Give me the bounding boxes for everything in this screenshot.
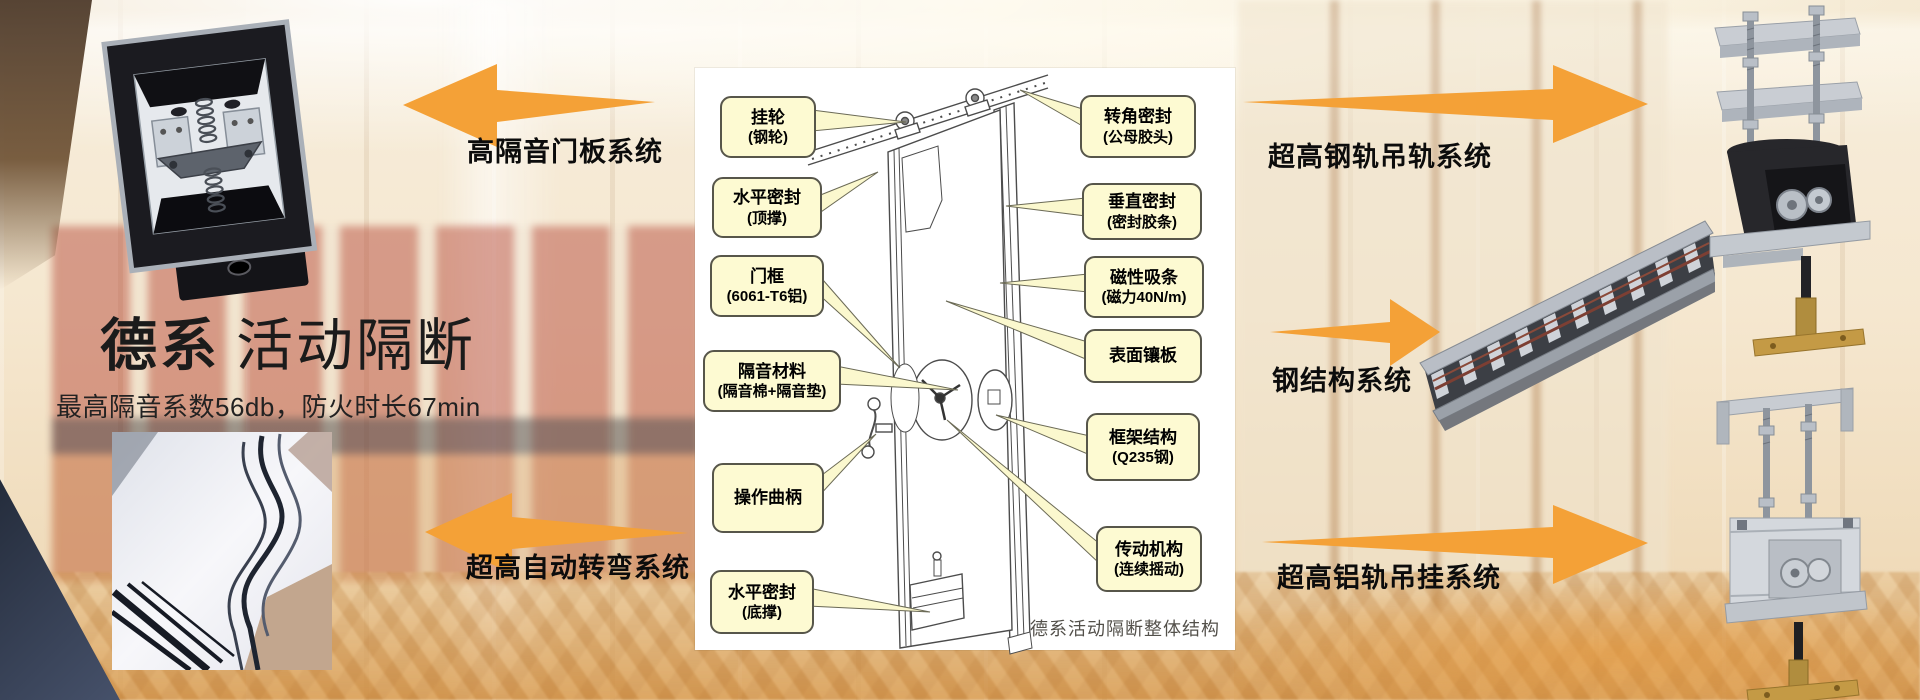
callout-title: 水平密封 <box>733 187 801 209</box>
label-aluminum-rail-system: 超高铝轨吊挂系统 <box>1277 556 1501 595</box>
partition-system-infographic: 挂轮 (钢轮) 水平密封 (顶撑) 门框 (6061-T6铝) 隔音材料 (隔音… <box>0 0 1920 700</box>
callout-title: 垂直密封 <box>1108 191 1176 213</box>
callout-hanging-wheel: 挂轮 (钢轮) <box>720 96 816 158</box>
callout-title: 隔音材料 <box>738 361 806 383</box>
callout-detail: (磁力40N/m) <box>1101 288 1186 307</box>
callout-detail: (Q235钢) <box>1112 448 1174 467</box>
callout-title: 表面镶板 <box>1109 345 1177 367</box>
label-steel-structure-system: 钢结构系统 <box>1272 359 1412 398</box>
callout-sound-insulation: 隔音材料 (隔音棉+隔音垫) <box>703 350 841 412</box>
label-auto-turning-system: 超高自动转弯系统 <box>466 546 690 585</box>
callout-detail: (密封胶条) <box>1107 213 1177 232</box>
callout-door-frame: 门框 (6061-T6铝) <box>710 255 824 317</box>
arrow-top-right <box>1243 65 1648 143</box>
callout-surface-panel: 表面镶板 <box>1084 329 1202 383</box>
brand-name: 德系 <box>100 314 220 378</box>
product-name: 活动隔断 <box>236 314 476 378</box>
callout-title: 挂轮 <box>751 107 785 129</box>
callout-title: 水平密封 <box>728 582 796 604</box>
callout-horizontal-seal-bottom: 水平密封 (底撑) <box>710 570 814 634</box>
callout-detail: (顶撑) <box>747 209 787 228</box>
callout-operating-crank: 操作曲柄 <box>712 463 824 533</box>
label-steel-rail-system: 超高钢轨吊轨系统 <box>1268 135 1492 174</box>
callout-horizontal-seal-top: 水平密封 (顶撑) <box>712 177 822 238</box>
callout-frame-structure: 框架结构 (Q235钢) <box>1086 413 1200 481</box>
operating-crank <box>862 398 892 458</box>
callout-drive-mechanism: 传动机构 (连续摇动) <box>1096 526 1202 592</box>
callout-title: 操作曲柄 <box>734 487 802 509</box>
diagram-caption: 德系活动隔断整体结构 <box>1030 615 1215 641</box>
label-door-panel-system: 高隔音门板系统 <box>467 130 663 169</box>
callout-title: 磁性吸条 <box>1110 267 1178 289</box>
callout-corner-seal: 转角密封 (公母胶头) <box>1080 95 1196 158</box>
callout-title: 框架结构 <box>1109 427 1177 449</box>
callout-vertical-seal: 垂直密封 (密封胶条) <box>1082 183 1202 240</box>
callout-detail: (底撑) <box>742 603 782 622</box>
callout-detail: (钢轮) <box>748 128 788 147</box>
callout-detail: (公母胶头) <box>1103 128 1173 147</box>
callout-detail: (隔音棉+隔音垫) <box>718 382 827 401</box>
arrow-mid-right <box>1270 299 1440 366</box>
page-title: 德系活动隔断 <box>100 300 476 382</box>
callout-title: 转角密封 <box>1104 106 1172 128</box>
callout-detail: (连续摇动) <box>1114 560 1184 579</box>
door-diagram-line-art <box>808 75 1048 654</box>
performance-subtitle: 最高隔音系数56db，防火时长67min <box>56 387 481 424</box>
callout-title: 传动机构 <box>1115 539 1183 561</box>
callout-detail: (6061-T6铝) <box>727 287 808 306</box>
callout-title: 门框 <box>750 266 784 288</box>
callout-magnetic-strip: 磁性吸条 (磁力40N/m) <box>1084 256 1204 318</box>
